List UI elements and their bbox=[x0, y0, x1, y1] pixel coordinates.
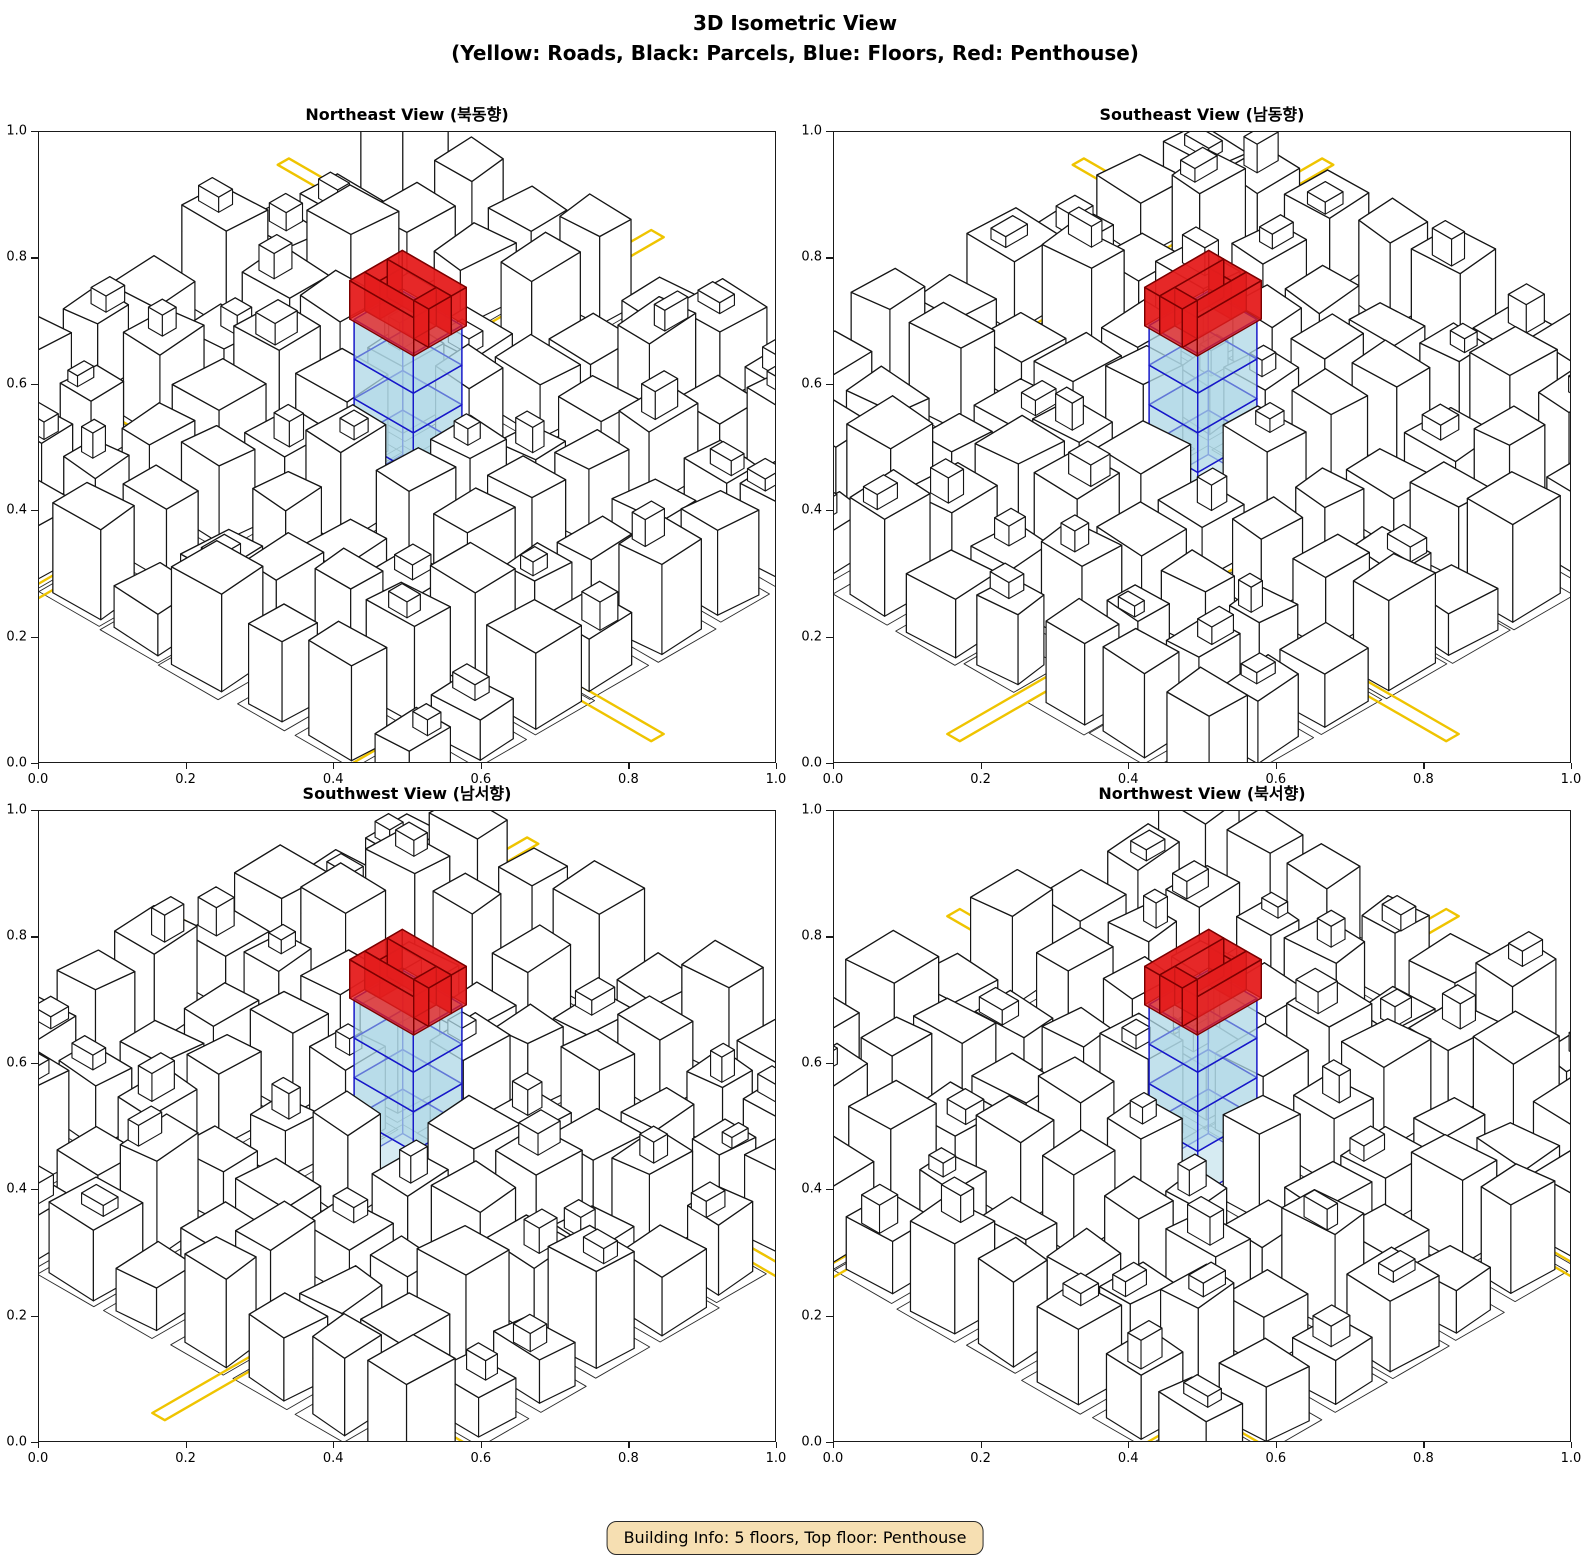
building-info-label: Building Info: 5 floors, Top floor: Pent… bbox=[624, 1528, 967, 1547]
x-tick-mark bbox=[186, 763, 187, 769]
y-tick-label: 1.0 bbox=[6, 124, 27, 139]
x-tick-mark bbox=[38, 1442, 39, 1448]
y-tick-label: 0.0 bbox=[801, 756, 822, 771]
y-tick-mark bbox=[31, 1189, 38, 1190]
x-tick-mark bbox=[1423, 763, 1424, 769]
y-tick-mark bbox=[31, 810, 38, 811]
figure-subtitle: (Yellow: Roads, Black: Parcels, Blue: Fl… bbox=[0, 38, 1590, 68]
x-tick-label: 1.0 bbox=[766, 1451, 787, 1466]
x-tick-mark bbox=[481, 1442, 482, 1448]
x-tick-mark bbox=[333, 1442, 334, 1448]
x-tick-mark bbox=[1571, 763, 1572, 769]
y-tick-label: 0.8 bbox=[801, 250, 822, 265]
y-tick-mark bbox=[826, 1442, 833, 1443]
x-tick-label: 0.4 bbox=[323, 1451, 344, 1466]
x-tick-mark bbox=[1128, 763, 1129, 769]
y-tick-mark bbox=[826, 810, 833, 811]
y-tick-label: 0.4 bbox=[801, 1182, 822, 1197]
y-tick-label: 0.2 bbox=[6, 1308, 27, 1323]
x-tick-mark bbox=[833, 763, 834, 769]
x-tick-mark bbox=[981, 763, 982, 769]
x-tick-mark bbox=[1128, 1442, 1129, 1448]
subplot-northwest: Northwest View (북서향) 0.00.20.40.60.81.00… bbox=[833, 810, 1571, 1442]
y-tick-mark bbox=[31, 384, 38, 385]
y-tick-mark bbox=[31, 763, 38, 764]
x-tick-label: 0.4 bbox=[1118, 1451, 1139, 1466]
x-tick-mark bbox=[981, 1442, 982, 1448]
y-tick-label: 0.0 bbox=[6, 1435, 27, 1450]
y-tick-label: 0.2 bbox=[6, 629, 27, 644]
plot-title-northwest: Northwest View (북서향) bbox=[833, 780, 1571, 804]
y-tick-label: 0.8 bbox=[6, 250, 27, 265]
x-tick-mark bbox=[1276, 1442, 1277, 1448]
x-tick-label: 0.8 bbox=[1413, 1451, 1434, 1466]
x-tick-mark bbox=[38, 763, 39, 769]
y-tick-mark bbox=[826, 1316, 833, 1317]
x-tick-label: 0.2 bbox=[970, 1451, 991, 1466]
y-tick-label: 0.8 bbox=[801, 929, 822, 944]
plot-title-southwest: Southwest View (남서향) bbox=[38, 780, 776, 804]
plot-box-southeast bbox=[833, 131, 1571, 763]
x-tick-mark bbox=[1423, 1442, 1424, 1448]
y-tick-mark bbox=[826, 637, 833, 638]
plot-box-southwest bbox=[38, 810, 776, 1442]
figure-header: 3D Isometric View (Yellow: Roads, Black:… bbox=[0, 8, 1590, 68]
y-tick-mark bbox=[31, 1063, 38, 1064]
x-tick-label: 0.8 bbox=[618, 1451, 639, 1466]
scene-canvas-southwest bbox=[39, 811, 776, 1442]
y-tick-mark bbox=[31, 257, 38, 258]
building-info-box: Building Info: 5 floors, Top floor: Pent… bbox=[607, 1521, 984, 1555]
x-tick-mark bbox=[1276, 763, 1277, 769]
x-tick-mark bbox=[333, 763, 334, 769]
y-tick-mark bbox=[31, 936, 38, 937]
y-tick-label: 0.4 bbox=[6, 1182, 27, 1197]
x-tick-mark bbox=[481, 763, 482, 769]
scene-canvas-northeast bbox=[39, 132, 776, 763]
y-tick-label: 0.6 bbox=[6, 376, 27, 391]
x-tick-mark bbox=[186, 1442, 187, 1448]
y-tick-mark bbox=[826, 510, 833, 511]
scene-canvas-northwest bbox=[834, 811, 1571, 1442]
y-tick-label: 0.8 bbox=[6, 929, 27, 944]
y-tick-mark bbox=[826, 936, 833, 937]
y-tick-mark bbox=[826, 384, 833, 385]
y-tick-label: 0.6 bbox=[6, 1055, 27, 1070]
y-tick-label: 1.0 bbox=[6, 803, 27, 818]
y-tick-mark bbox=[826, 1063, 833, 1064]
x-tick-label: 0.6 bbox=[1265, 1451, 1286, 1466]
y-tick-label: 0.0 bbox=[6, 756, 27, 771]
y-tick-mark bbox=[31, 131, 38, 132]
y-tick-mark bbox=[826, 763, 833, 764]
x-tick-mark bbox=[833, 1442, 834, 1448]
y-tick-label: 0.4 bbox=[6, 503, 27, 518]
x-tick-mark bbox=[628, 1442, 629, 1448]
y-tick-label: 0.2 bbox=[801, 1308, 822, 1323]
plot-title-northeast: Northeast View (북동향) bbox=[38, 101, 776, 125]
plot-box-northeast bbox=[38, 131, 776, 763]
subplot-northeast: Northeast View (북동향) 0.00.20.40.60.81.00… bbox=[38, 131, 776, 763]
subplot-southwest: Southwest View (남서향) 0.00.20.40.60.81.00… bbox=[38, 810, 776, 1442]
x-tick-mark bbox=[776, 763, 777, 769]
y-tick-mark bbox=[826, 257, 833, 258]
x-tick-label: 0.0 bbox=[823, 1451, 844, 1466]
y-tick-mark bbox=[826, 131, 833, 132]
x-tick-label: 0.0 bbox=[28, 1451, 49, 1466]
plot-title-southeast: Southeast View (남동향) bbox=[833, 101, 1571, 125]
y-tick-label: 0.2 bbox=[801, 629, 822, 644]
y-tick-label: 0.6 bbox=[801, 376, 822, 391]
y-tick-mark bbox=[31, 637, 38, 638]
x-tick-mark bbox=[776, 1442, 777, 1448]
scene-canvas-southeast bbox=[834, 132, 1571, 763]
y-tick-mark bbox=[31, 1316, 38, 1317]
y-tick-label: 0.4 bbox=[801, 503, 822, 518]
x-tick-label: 1.0 bbox=[1561, 1451, 1582, 1466]
y-tick-label: 0.6 bbox=[801, 1055, 822, 1070]
plot-box-northwest bbox=[833, 810, 1571, 1442]
y-tick-label: 0.0 bbox=[801, 1435, 822, 1450]
x-tick-mark bbox=[1571, 1442, 1572, 1448]
x-tick-mark bbox=[628, 763, 629, 769]
y-tick-mark bbox=[826, 1189, 833, 1190]
subplot-southeast: Southeast View (남동향) 0.00.20.40.60.81.00… bbox=[833, 131, 1571, 763]
x-tick-label: 0.2 bbox=[175, 1451, 196, 1466]
y-tick-label: 1.0 bbox=[801, 124, 822, 139]
figure-title: 3D Isometric View bbox=[0, 8, 1590, 38]
y-tick-mark bbox=[31, 510, 38, 511]
x-tick-label: 0.6 bbox=[470, 1451, 491, 1466]
y-tick-label: 1.0 bbox=[801, 803, 822, 818]
y-tick-mark bbox=[31, 1442, 38, 1443]
